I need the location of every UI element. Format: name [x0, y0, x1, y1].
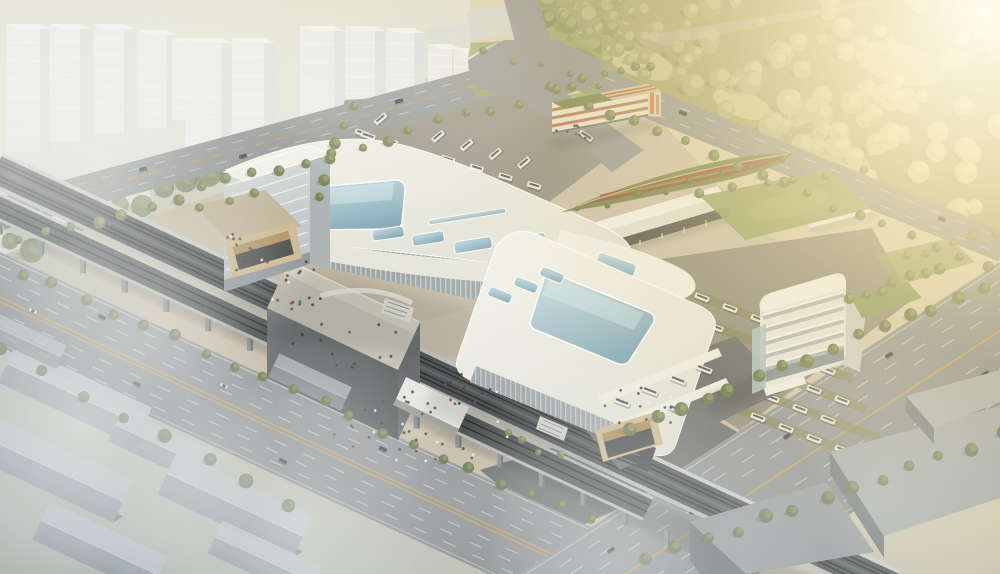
rendering-canvas: Aerial rendering of a modern rail-and-bu…: [0, 0, 1000, 574]
aerial-rendering: Aerial rendering of a modern rail-and-bu…: [0, 0, 1000, 574]
sun-glow: Golden sunlight glow: [0, 0, 1000, 574]
